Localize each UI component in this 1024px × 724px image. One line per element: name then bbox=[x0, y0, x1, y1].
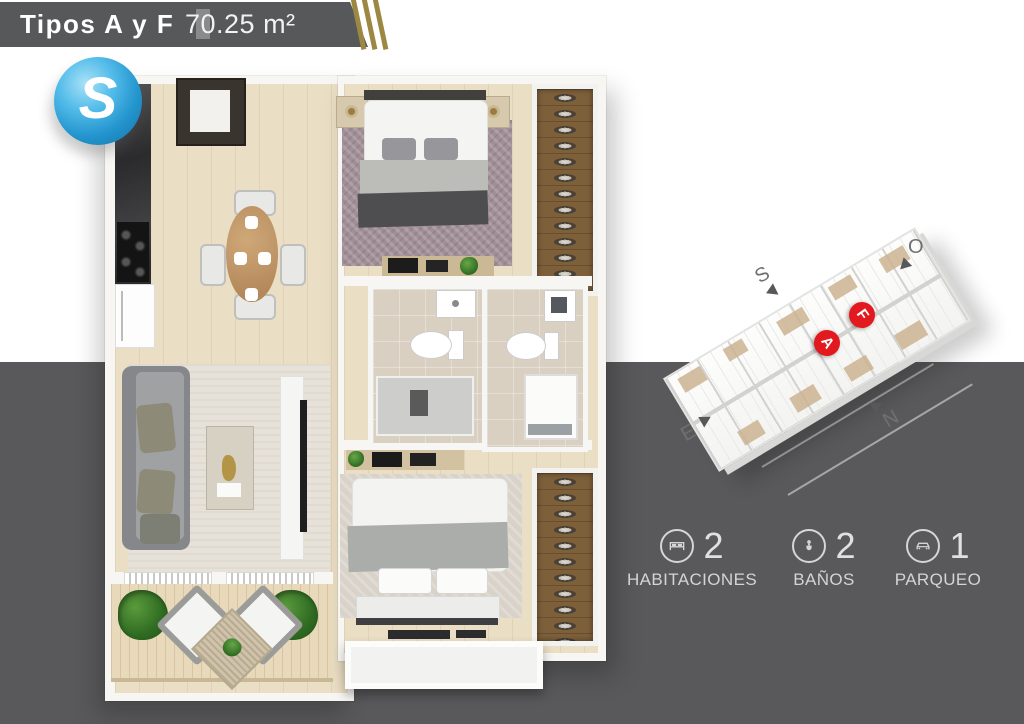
stat-parking: 1 PARQUEO bbox=[863, 527, 1013, 590]
toilet-icon bbox=[800, 537, 818, 555]
stat-bedrooms: 2 HABITACIONES bbox=[617, 527, 767, 590]
bedrooms-count: 2 bbox=[703, 527, 723, 565]
parking-label: PARQUEO bbox=[863, 570, 1013, 590]
stat-circle bbox=[660, 529, 694, 563]
stats-bar: 2 HABITACIONES 2 BAÑOS bbox=[0, 0, 1024, 724]
stat-circle bbox=[906, 529, 940, 563]
brand-logo: S bbox=[54, 57, 142, 145]
bedrooms-label: HABITACIONES bbox=[617, 570, 767, 590]
marketing-sheet: A F S O E N Tipos A y F 70.25 m² S bbox=[0, 0, 1024, 724]
logo-letter: S bbox=[54, 57, 142, 143]
bed-icon bbox=[667, 536, 687, 556]
car-icon bbox=[913, 536, 933, 556]
parking-count: 1 bbox=[949, 527, 969, 565]
stat-circle bbox=[792, 529, 826, 563]
bathrooms-count: 2 bbox=[835, 527, 855, 565]
